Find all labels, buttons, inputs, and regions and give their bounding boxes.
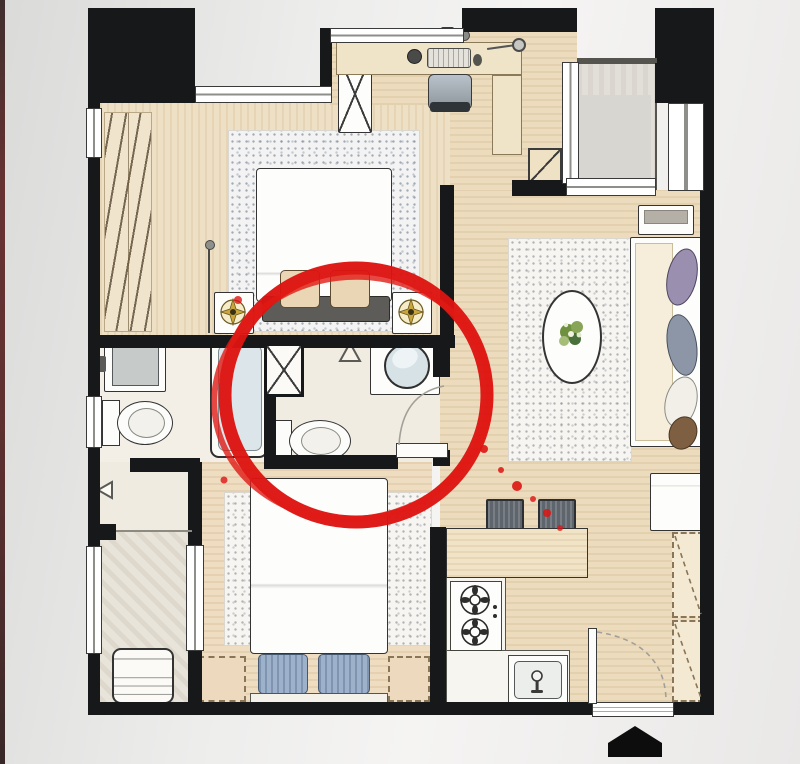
console-table (638, 205, 694, 235)
wall-ensuite-south (264, 455, 398, 469)
mouse (473, 54, 482, 66)
bathroom-toilet-seat (128, 408, 165, 438)
screenshot-root: { "meta": { "type": "floor-plan-illustra… (0, 0, 800, 764)
ensuite-toilet-seat (301, 427, 341, 455)
plant-icon (544, 292, 600, 382)
bed2-duvet (250, 478, 388, 654)
kitchen-sink (508, 655, 568, 705)
balcony-glazing-left (562, 62, 579, 184)
faucet-icon (509, 656, 566, 703)
window-right-panel (668, 103, 704, 191)
left-edge-strip (0, 0, 5, 764)
floor-lamp (208, 245, 210, 333)
window-bedroom1-top (195, 86, 332, 103)
balcony-shade (579, 95, 651, 188)
wall-bedroom2-west-bot (188, 648, 202, 704)
desk-return (492, 75, 522, 155)
wall-band-top (462, 8, 577, 32)
ceiling-light-icon (215, 293, 251, 331)
bathtub-inner (218, 345, 262, 451)
balcony-door-mark (528, 148, 562, 184)
window-left-3 (86, 546, 102, 654)
floor-lamp-head (205, 240, 215, 250)
window-left-1 (86, 108, 102, 158)
side-cabinet (650, 473, 704, 531)
wall-master-east (440, 185, 454, 348)
coffee-table (542, 290, 602, 384)
console-table-top (644, 210, 688, 224)
entrance-opening (592, 702, 674, 717)
window-left-2 (86, 396, 102, 448)
service-shaft (264, 343, 304, 397)
gas-stove (450, 581, 502, 651)
master-bed-duvet (256, 168, 392, 302)
balcony-glazing-bottom (566, 178, 656, 196)
balcony-top-line (577, 58, 657, 63)
nightstand-left (214, 292, 254, 334)
nightstand-right (392, 292, 432, 334)
wall-bath-divider (264, 394, 276, 462)
desk-chair-back (430, 102, 470, 112)
window-workspace-top (330, 28, 464, 43)
keyboard (427, 48, 471, 68)
wall-ensuite-east-top (433, 335, 450, 377)
wall-balcony-stub (512, 180, 566, 196)
wall-bedroom2-east (430, 527, 446, 702)
speaker-icon (407, 49, 422, 64)
wall-block-top-left (88, 8, 195, 103)
hanging-wardrobe-rail (104, 112, 152, 332)
wall-svc-stub (88, 524, 116, 540)
washing-machine (112, 648, 174, 704)
kitchen-counter (446, 528, 588, 578)
bathtub (210, 336, 268, 458)
bed2-pillow-right (318, 654, 370, 694)
bedside-cabinet-right (388, 656, 430, 702)
bench-cushion-left (280, 270, 320, 308)
washbasin-inner (112, 346, 159, 386)
bed2-pillow-left (258, 654, 308, 694)
ensuite-door-leaf (396, 443, 448, 458)
ceiling-light-icon (393, 293, 429, 331)
stove-burners-icon (451, 582, 500, 649)
desk-lamp-head (512, 38, 526, 52)
wall-bedroom2-west-top (188, 462, 202, 547)
window-bedroom2-west (186, 545, 204, 651)
entrance-arrow (608, 726, 662, 757)
sofa (630, 237, 702, 447)
svc-divider-line (116, 530, 192, 532)
bench-cushion-right (330, 270, 370, 308)
entrance-door-leaf (588, 628, 597, 704)
bedside-cabinet-left (198, 656, 246, 702)
